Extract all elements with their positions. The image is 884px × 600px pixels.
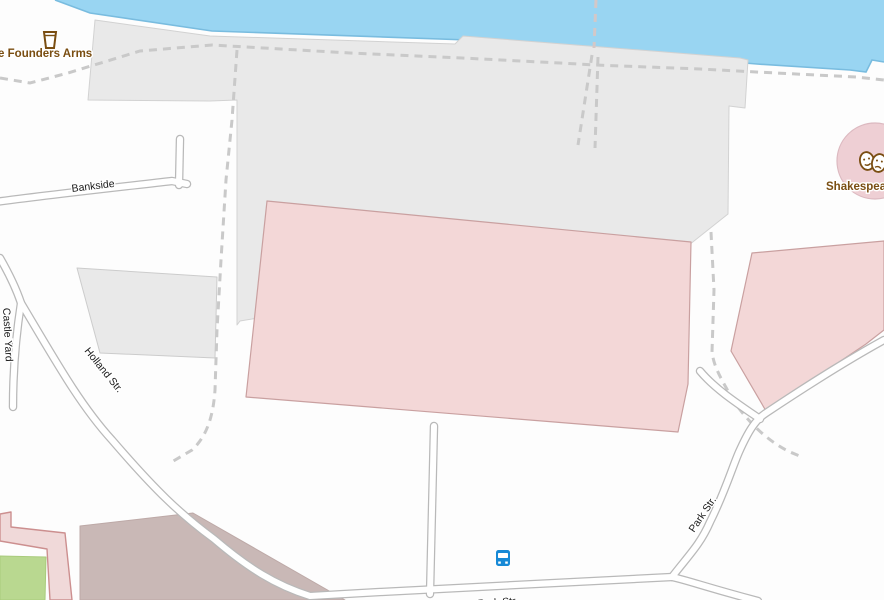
road-vertical (430, 426, 434, 594)
road-bankside-stub (179, 139, 180, 185)
road-northwest (0, 258, 21, 303)
founders-arms-label: The Founders Arms (0, 48, 92, 60)
attraction-area-central (246, 201, 691, 432)
building-mauve (80, 513, 345, 600)
map-viewport[interactable]: The Founders Arms Shakespeare's Globe Ba… (0, 0, 884, 600)
shakespeare-label: Shakespeare's Globe (826, 181, 884, 193)
map-canvas[interactable]: The Founders Arms Shakespeare's Globe Ba… (0, 0, 884, 600)
garden-green (0, 556, 46, 600)
bottom-street-label: Park Str. (477, 595, 518, 600)
beer-mug-icon (44, 32, 56, 48)
road-southeast-branch (672, 577, 758, 600)
castle-yard-label: Castle Yard (0, 308, 15, 363)
pedestrian-area-small (77, 268, 217, 358)
bus-icon (496, 550, 510, 566)
footpath-west-edge (170, 50, 237, 463)
